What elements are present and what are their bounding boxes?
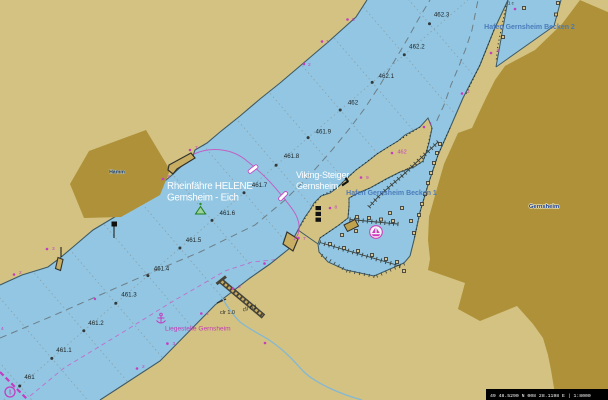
svg-text:2: 2 bbox=[308, 62, 311, 68]
svg-text:461.4: 461.4 bbox=[154, 266, 170, 273]
svg-text:Viking-Steiger: Viking-Steiger bbox=[296, 170, 349, 180]
svg-text:461: 461 bbox=[24, 374, 35, 381]
svg-text:462.1: 462.1 bbox=[379, 73, 395, 80]
svg-text:461.2: 461.2 bbox=[88, 320, 104, 327]
svg-text:Gernsheim: Gernsheim bbox=[296, 181, 338, 191]
svg-text:3: 3 bbox=[52, 246, 55, 252]
svg-text:1: 1 bbox=[326, 39, 329, 45]
svg-text:1 c: 1 c bbox=[508, 1, 515, 6]
svg-text:2: 2 bbox=[19, 270, 22, 276]
svg-text:Gernsheim: Gernsheim bbox=[529, 204, 559, 210]
svg-text:461.5: 461.5 bbox=[186, 237, 202, 244]
svg-text:3: 3 bbox=[238, 284, 241, 290]
svg-text:Hafen Gernsheim Becken 2: Hafen Gernsheim Becken 2 bbox=[484, 24, 575, 31]
svg-text:462: 462 bbox=[348, 99, 359, 106]
svg-text:462.2: 462.2 bbox=[409, 44, 425, 51]
svg-text:2: 2 bbox=[467, 89, 470, 95]
svg-text:49 48.5290 N 008 28.1198 E |: 49 48.5290 N 008 28.1198 E | 1:8000 bbox=[490, 393, 591, 399]
svg-text:4: 4 bbox=[1, 326, 4, 332]
svg-text:461.9: 461.9 bbox=[316, 129, 332, 136]
svg-text:8: 8 bbox=[335, 205, 338, 211]
svg-text:2: 2 bbox=[142, 364, 145, 370]
svg-text:461.7: 461.7 bbox=[252, 182, 268, 189]
svg-text:3: 3 bbox=[173, 341, 176, 347]
svg-text:461.8: 461.8 bbox=[284, 153, 300, 160]
svg-text:Hamm: Hamm bbox=[109, 170, 125, 176]
svg-text:461.1: 461.1 bbox=[56, 347, 72, 354]
svg-text:7: 7 bbox=[303, 236, 306, 242]
svg-text:Gernsheim - Eich: Gernsheim - Eich bbox=[167, 193, 239, 204]
svg-text:3: 3 bbox=[497, 48, 500, 54]
svg-text:461.6: 461.6 bbox=[220, 210, 236, 217]
svg-text:461.3: 461.3 bbox=[121, 292, 137, 299]
svg-text:!: ! bbox=[9, 390, 11, 397]
svg-text:clr 1.0: clr 1.0 bbox=[220, 310, 235, 316]
svg-text:462.3: 462.3 bbox=[434, 12, 450, 19]
svg-text:5: 5 bbox=[352, 17, 355, 23]
svg-text:1: 1 bbox=[430, 121, 433, 127]
svg-text:7: 7 bbox=[195, 145, 198, 151]
svg-text:Liegestelle Gernsheim: Liegestelle Gernsheim bbox=[165, 326, 231, 333]
svg-text:6: 6 bbox=[168, 174, 171, 180]
svg-text:4: 4 bbox=[206, 311, 209, 317]
svg-text:9: 9 bbox=[366, 175, 369, 181]
svg-text:Rheinfähre HELENE: Rheinfähre HELENE bbox=[167, 181, 253, 192]
svg-text:462: 462 bbox=[398, 150, 407, 156]
svg-text:Hafen Gernsheim Becken 1: Hafen Gernsheim Becken 1 bbox=[346, 190, 437, 197]
